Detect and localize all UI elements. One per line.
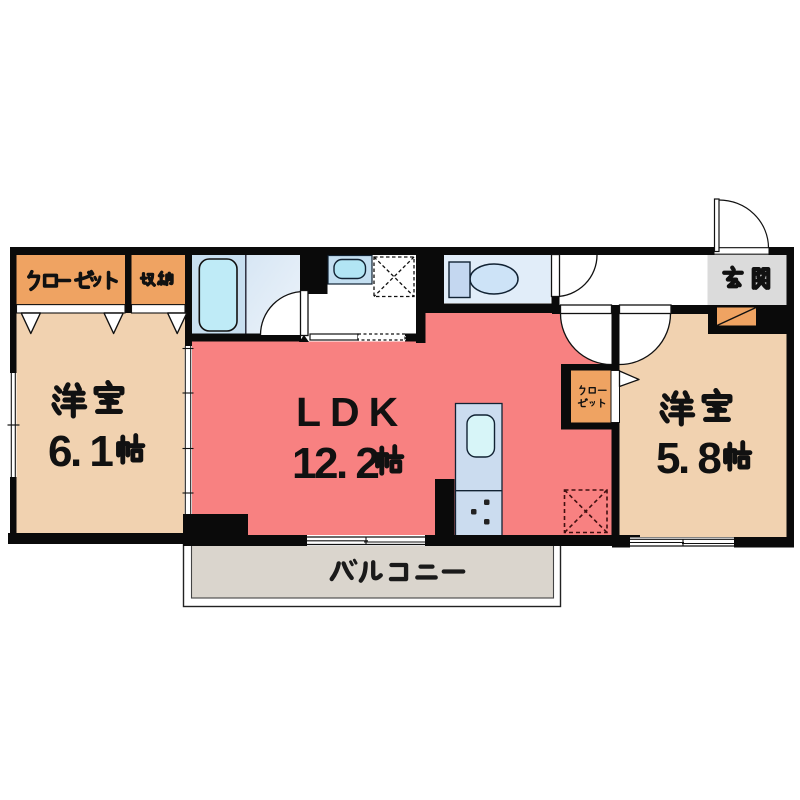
svg-text:6. 1: 6. 1: [48, 427, 113, 476]
svg-text:LDK: LDK: [296, 389, 407, 435]
svg-text:5. 8: 5. 8: [656, 434, 721, 483]
svg-text:12. 2: 12. 2: [292, 439, 378, 488]
